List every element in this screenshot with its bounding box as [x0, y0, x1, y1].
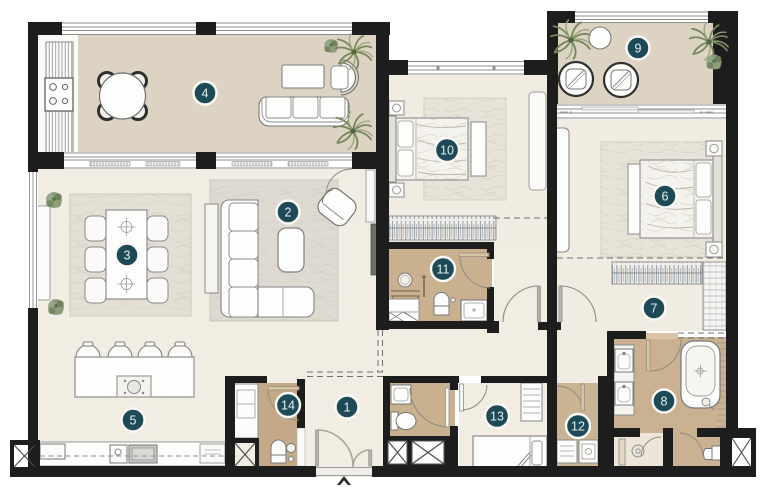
svg-text:13: 13 [490, 410, 504, 424]
svg-text:3: 3 [124, 249, 131, 263]
svg-text:12: 12 [571, 420, 585, 434]
svg-text:9: 9 [635, 42, 642, 56]
svg-text:7: 7 [651, 302, 658, 316]
svg-text:14: 14 [281, 399, 295, 413]
svg-text:5: 5 [130, 414, 137, 428]
svg-text:2: 2 [285, 206, 292, 220]
svg-text:1: 1 [344, 401, 351, 415]
svg-text:11: 11 [437, 263, 450, 277]
svg-text:4: 4 [202, 87, 209, 101]
svg-text:6: 6 [662, 190, 669, 204]
svg-text:10: 10 [440, 144, 454, 158]
svg-text:8: 8 [661, 395, 668, 409]
